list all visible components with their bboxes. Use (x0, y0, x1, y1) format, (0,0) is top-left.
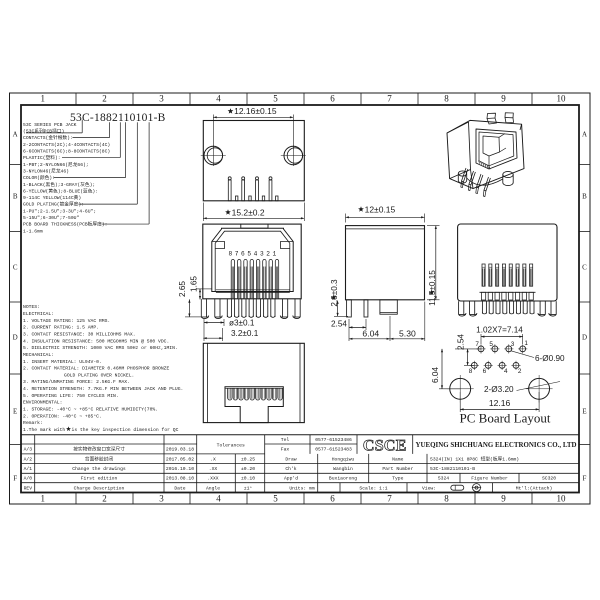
svg-text:PCB BOARD THICKNESS(PCB板厚度):: PCB BOARD THICKNESS(PCB板厚度): (23, 221, 107, 228)
svg-text:0577-61523483: 0577-61523483 (315, 447, 352, 453)
svg-text:Buxiaorong: Buxiaorong (329, 476, 357, 482)
svg-text:1-1.6mm: 1-1.6mm (23, 228, 43, 234)
svg-text:3.2±0.1: 3.2±0.1 (231, 329, 259, 338)
svg-text:GOLD PLATING OVER NICKEL.: GOLD PLATING OVER NICKEL. (64, 372, 134, 378)
svg-text:2019.03.18: 2019.03.18 (166, 447, 194, 453)
svg-text:11.5±0.15: 11.5±0.15 (428, 270, 437, 306)
svg-text:4: 4 (254, 250, 258, 257)
svg-text:15.2±0.2: 15.2±0.2 (232, 207, 265, 217)
svg-text:3: 3 (159, 94, 164, 104)
svg-text:10: 10 (557, 94, 567, 104)
svg-text:1. STORAGE: -40°C ~ +85°C RELA: 1. STORAGE: -40°C ~ +85°C RELATIVE HUMID… (23, 407, 158, 413)
svg-text:ENVIRONMENTAL:: ENVIRONMENTAL: (23, 400, 62, 406)
svg-text:1-PU";2-1.5U";3-3U";4-6U";: 1-PU";2-1.5U";3-3U";4-6U"; (23, 208, 96, 214)
svg-text:2. OPERATION: -40°C ~ +85°C.: 2. OPERATION: -40°C ~ +85°C. (23, 413, 102, 419)
svg-text:1. INSERT MATERIAL: UL94V-0.: 1. INSERT MATERIAL: UL94V-0. (23, 359, 102, 365)
svg-text:Charge Description: Charge Description (74, 485, 125, 491)
svg-text:.X: .X (210, 456, 216, 462)
svg-text:9: 9 (501, 94, 506, 104)
svg-text:A: A (582, 131, 587, 139)
svg-text:Name: Name (392, 456, 403, 462)
svg-text:2.65: 2.65 (178, 281, 187, 297)
svg-text:Figure Number: Figure Number (471, 476, 508, 482)
svg-text:10: 10 (557, 494, 567, 504)
svg-text:C: C (582, 264, 587, 272)
svg-text:D: D (13, 334, 18, 342)
svg-text:1: 1 (41, 94, 46, 104)
svg-text:Units: mm: Units: mm (289, 485, 315, 491)
svg-text:C: C (13, 264, 18, 272)
svg-text:F: F (583, 475, 587, 483)
svg-text:6: 6 (483, 368, 487, 375)
svg-text:Draw: Draw (285, 456, 296, 462)
svg-text:2.54: 2.54 (457, 334, 466, 350)
svg-text:.XX: .XX (209, 466, 218, 472)
svg-text:2013.08.10: 2013.08.10 (166, 476, 194, 482)
svg-text:5324(IN) 1X1 8P8C 短型(板厚1.6mm): 5324(IN) 1X1 8P8C 短型(板厚1.6mm) (430, 455, 519, 462)
svg-text:ø3±0.1: ø3±0.1 (229, 318, 255, 327)
svg-text:5324: 5324 (438, 476, 449, 482)
svg-text:Date: Date (174, 485, 185, 491)
svg-text:PC Board Layout: PC Board Layout (460, 411, 551, 426)
svg-text:(53C系列PCB插口): (53C系列PCB插口) (23, 128, 64, 135)
svg-text:8: 8 (444, 94, 449, 104)
svg-text:5: 5 (489, 341, 493, 348)
svg-text:2017.05.02: 2017.05.02 (166, 456, 194, 462)
svg-text:A: A (13, 131, 18, 139)
svg-text:1: 1 (524, 340, 528, 347)
svg-text:12.16: 12.16 (489, 398, 511, 408)
svg-text:3: 3 (159, 494, 164, 504)
svg-text:3: 3 (511, 341, 515, 348)
svg-text:D: D (582, 334, 587, 342)
svg-text:B: B (582, 193, 587, 201)
svg-text:6-YELLOW(黄色);8-BLUE(蓝色):: 6-YELLOW(黄色);8-BLUE(蓝色): (23, 187, 98, 194)
svg-text:6: 6 (330, 94, 335, 104)
svg-text:8: 8 (444, 494, 449, 504)
svg-text:7: 7 (387, 94, 392, 104)
svg-text:±0.10: ±0.10 (241, 476, 255, 482)
svg-text:E: E (582, 408, 586, 416)
svg-text:2.6±0.3: 2.6±0.3 (330, 279, 339, 307)
svg-text:4. RETENTION STRENGTH: 7.7KG.F: 4. RETENTION STRENGTH: 7.7KG.F MIN BETWE… (23, 386, 183, 392)
svg-text:Remark:: Remark: (23, 420, 43, 426)
svg-text:A/0: A/0 (24, 476, 33, 482)
svg-text:5. DIELECTRIC STRENGTH: 1000 V: 5. DIELECTRIC STRENGTH: 1000 VAC RMS 50H… (23, 345, 178, 351)
svg-text:5.30: 5.30 (399, 329, 416, 339)
svg-text:4: 4 (216, 94, 221, 104)
svg-text:COLOR(颜色):: COLOR(颜色): (23, 174, 55, 181)
svg-text:MECHANICAL:: MECHANICAL: (23, 352, 54, 358)
svg-text:±0.20: ±0.20 (241, 466, 255, 472)
svg-text:2: 2 (102, 494, 107, 504)
svg-text:App'd: App'd (284, 476, 298, 482)
svg-text:View:: View: (422, 485, 436, 491)
svg-text:E: E (13, 408, 17, 416)
svg-text:53C SERIES PCB JACK: 53C SERIES PCB JACK (23, 122, 77, 128)
svg-text:1.02X7=7.14: 1.02X7=7.14 (476, 326, 523, 335)
svg-text:Hongqiwu: Hongqiwu (332, 456, 355, 462)
svg-text:2016.10.10: 2016.10.10 (166, 466, 194, 472)
svg-text:按实物修改窗口宽深尺寸: 按实物修改窗口宽深尺寸 (73, 446, 125, 453)
svg-text:A/2: A/2 (24, 456, 33, 462)
svg-text:1: 1 (41, 494, 46, 504)
svg-text:7: 7 (475, 341, 479, 348)
svg-text:1. VOLTAGE RATING: 125 VAC RMS: 1. VOLTAGE RATING: 125 VAC RMS. (23, 318, 110, 324)
svg-text:1: 1 (273, 250, 277, 257)
svg-text:2: 2 (518, 368, 522, 375)
svg-text:2: 2 (266, 250, 270, 257)
svg-text:53C-1882110101-B: 53C-1882110101-B (70, 112, 166, 124)
svg-text:PLASTIC(塑料):: PLASTIC(塑料): (23, 154, 61, 161)
svg-text:Change the drawings: Change the drawings (72, 466, 126, 472)
svg-text:1-PBT;2-NYLON66(尼龙66);: 1-PBT;2-NYLON66(尼龙66); (23, 161, 89, 168)
svg-text:1.The mark with: 1.The mark with (23, 427, 65, 433)
svg-text:Wangbin: Wangbin (333, 466, 353, 472)
svg-text:2-2CONTACTS(2C);4-4CONTACTS(4C: 2-2CONTACTS(2C);4-4CONTACTS(4C) (23, 142, 110, 148)
svg-text:A/1: A/1 (24, 466, 33, 472)
svg-text:Angle: Angle (206, 485, 220, 491)
svg-text:Scale: 1:1: Scale: 1:1 (359, 485, 387, 491)
svg-text:6.04: 6.04 (362, 329, 379, 339)
svg-text:2. CONTACT MATERIAL: DIAMETER: 2. CONTACT MATERIAL: DIAMETER 0.46MM PHO… (23, 366, 169, 372)
svg-text:5-15U";6-30U";7-50U": 5-15U";6-30U";7-50U" (23, 215, 79, 221)
svg-text:Mt'l:(Attach): Mt'l:(Attach) (516, 485, 553, 491)
svg-text:背面移胶封闭: 背面移胶封闭 (85, 455, 113, 462)
svg-text:2.54: 2.54 (331, 319, 347, 328)
svg-text:Tolerances: Tolerances (217, 443, 245, 449)
svg-text:CONTACTS(金针根数):: CONTACTS(金针根数): (23, 134, 73, 141)
svg-text:YUEQING SHICHUANG ELECTRONICS: YUEQING SHICHUANG ELECTRONICS CO., LTD (416, 440, 577, 449)
svg-text:±0.25: ±0.25 (241, 456, 255, 462)
svg-text:6-Ø0.90: 6-Ø0.90 (535, 354, 565, 363)
svg-text:7: 7 (387, 494, 392, 504)
svg-text:5: 5 (247, 250, 251, 257)
svg-text:3. MATING/UNMATING FORCE: 2.5K: 3. MATING/UNMATING FORCE: 2.5KG.F MAX. (23, 379, 130, 385)
svg-text:2: 2 (102, 94, 107, 104)
svg-text:Tel: Tel (281, 437, 290, 443)
svg-text:3: 3 (260, 250, 264, 257)
svg-text:6-6CONTACTS(6C);8-8CONTACTS(8C: 6-6CONTACTS(6C);8-8CONTACTS(8C) (23, 149, 110, 155)
svg-text:.XXX: .XXX (207, 476, 218, 482)
svg-text:Ch'k: Ch'k (285, 466, 296, 472)
svg-text:A/3: A/3 (24, 447, 33, 453)
svg-text:3. CONTACT RESISTANCE: 30 MILL: 3. CONTACT RESISTANCE: 30 MILLIOHMS MAX. (23, 331, 136, 337)
svg-text:8: 8 (228, 250, 232, 257)
svg-text:0577-61523486: 0577-61523486 (315, 437, 352, 443)
svg-text:F: F (13, 475, 17, 483)
svg-text:4: 4 (504, 368, 508, 375)
svg-text:6.04: 6.04 (431, 367, 440, 383)
svg-text:REV: REV (24, 485, 33, 491)
svg-text:2-Ø3.20: 2-Ø3.20 (484, 385, 514, 394)
svg-text:6: 6 (330, 494, 335, 504)
svg-text:SC320: SC320 (542, 476, 556, 482)
svg-text:Part Number: Part Number (382, 466, 413, 472)
svg-text:3-NYLON46(尼龙46): 3-NYLON46(尼龙46) (23, 167, 69, 174)
svg-text:53C-1882110101-B: 53C-1882110101-B (430, 466, 475, 472)
svg-text:±1°: ±1° (244, 485, 253, 491)
svg-text:First edition: First edition (81, 476, 118, 482)
svg-text:Fax: Fax (281, 447, 290, 453)
svg-text:Type: Type (392, 476, 403, 482)
svg-text:9: 9 (501, 494, 506, 504)
svg-text:8: 8 (469, 368, 473, 375)
svg-text:12±0.15: 12±0.15 (365, 204, 396, 214)
svg-text:12.16±0.15: 12.16±0.15 (234, 106, 277, 116)
svg-text:5: 5 (273, 94, 278, 104)
svg-text:is the key inspection dimensio: is the key inspection dimension for QC (72, 427, 179, 433)
svg-text:2. CURRENT RATING: 1.5 AMP.: 2. CURRENT RATING: 1.5 AMP. (23, 325, 99, 331)
svg-text:5. OPERATING LIFE: 750 CYCLES: 5. OPERATING LIFE: 750 CYCLES MIN. (23, 393, 119, 399)
svg-text:B: B (13, 193, 18, 201)
svg-text:1-BLACK(黑色);3-GRAY(灰色);: 1-BLACK(黑色);3-GRAY(灰色); (23, 181, 95, 188)
svg-text:ELECTRICAL:: ELECTRICAL: (23, 311, 54, 317)
svg-text:NOTES:: NOTES: (23, 304, 40, 310)
svg-text:4. INSULATION RESISTANCE: 500: 4. INSULATION RESISTANCE: 500 MEGOHMS MI… (23, 338, 169, 344)
svg-text:CSCE: CSCE (363, 438, 407, 455)
svg-text:7: 7 (235, 250, 239, 257)
svg-text:4: 4 (216, 494, 221, 504)
svg-text:1.65: 1.65 (190, 276, 199, 292)
svg-text:9-114C YELLOW(114C黄): 9-114C YELLOW(114C黄) (23, 194, 81, 201)
svg-text:GOLD PLATING(镀金厚度):: GOLD PLATING(镀金厚度): (23, 201, 84, 208)
svg-text:5: 5 (273, 494, 278, 504)
svg-text:6: 6 (241, 250, 245, 257)
